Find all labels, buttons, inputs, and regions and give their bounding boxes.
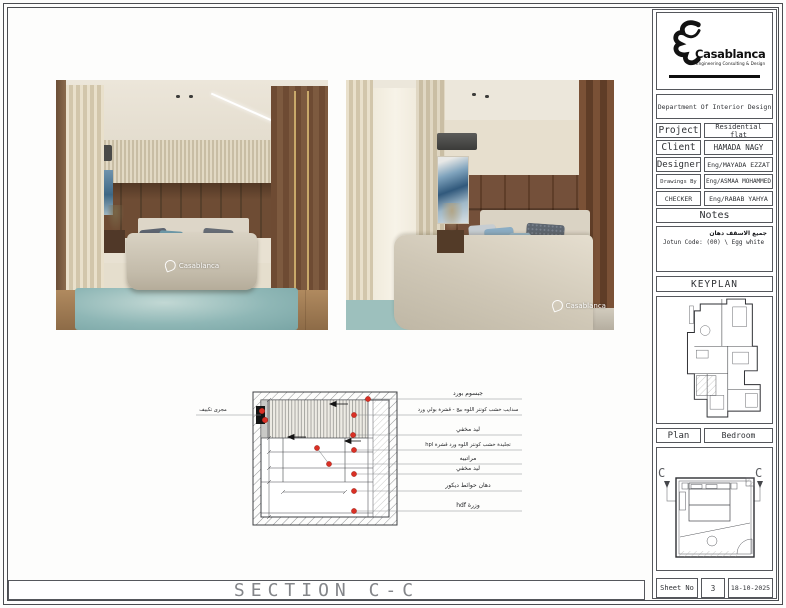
- wardrobe: [271, 86, 328, 319]
- plan-value: Bedroom: [704, 428, 773, 443]
- section-label-wood-slats: سدايب خشب كونتر اللوه بيج - قشرة بولي ور…: [412, 406, 524, 414]
- logo-underline: [669, 75, 760, 78]
- notes-box: جميع الاسقف دهان Jotun Code: (00) \ Egg …: [656, 226, 773, 272]
- row-label-designer: Designer: [656, 157, 701, 172]
- slat-panel: [102, 140, 271, 183]
- bedroom-render-close: Casablanca: [346, 80, 614, 330]
- bedroom-plan-drawing: [654, 446, 776, 572]
- plant: [106, 205, 125, 233]
- row-label-checker: CHECKER: [656, 191, 701, 206]
- watermark-logo-icon: [550, 298, 564, 312]
- sheet-title-bar: SECTION C-C: [8, 580, 645, 600]
- sheet-no-label: Sheet No: [656, 578, 698, 598]
- rug: [75, 288, 298, 331]
- curtain: [66, 85, 104, 320]
- watermark: Casablanca: [165, 260, 219, 271]
- wardrobe-frame: [307, 91, 309, 312]
- keyplan-drawing: [657, 297, 772, 423]
- row-value-client: HAMADA NAGY: [704, 140, 773, 155]
- notes-header: Notes: [656, 208, 773, 223]
- brand-tagline: Engineering Consulting & Design: [696, 61, 765, 66]
- drawing-sheet: Casablanca Casablanca: [0, 0, 786, 608]
- spotlight: [176, 95, 180, 98]
- sheet-number: 3: [701, 578, 725, 598]
- row-value-designer: Eng/MAYADA EZZAT: [704, 157, 773, 172]
- section-label-hidden-led-1: ليد مخفي: [412, 426, 524, 434]
- section-label-gypsum: جبسوم بورد: [412, 390, 524, 398]
- sheet-date: 18-10-2025: [728, 578, 773, 598]
- section-label-hpl-cladding: تجليدة خشب كونتر اللوه ورد قشرة hpl: [412, 441, 524, 449]
- note-arabic: جميع الاسقف دهان: [709, 230, 767, 237]
- row-label-project: Project: [656, 123, 701, 138]
- section-title-text: SECTION C-C: [234, 580, 419, 601]
- section-label-hdf-skirting: وزرة hdf: [412, 502, 524, 510]
- row-value-checker: Eng/RABAB YAHYA: [704, 191, 773, 206]
- curtain: [346, 80, 373, 323]
- section-marker-c-left: C: [658, 466, 665, 480]
- department-box: Department Of Interior Design: [656, 94, 773, 119]
- bed: [394, 235, 592, 330]
- section-label-wall-paint: دهان حوائط ديكور: [412, 482, 524, 490]
- nightstand: [104, 230, 126, 253]
- row-value-project: Residential flat: [704, 123, 773, 138]
- row-label-client: Client: [656, 140, 701, 155]
- wardrobe-frame: [294, 91, 296, 312]
- section-label-upholstery: مراتبيه: [412, 455, 524, 463]
- section-marker-c-right: C: [755, 466, 762, 480]
- ac-unit: [437, 133, 477, 151]
- spotlight: [472, 93, 476, 96]
- row-value-drawings-by: Eng/ASMAA MOHAMMED: [704, 174, 773, 189]
- section-label-hidden-led-2: ليد مخفي: [412, 465, 524, 473]
- watermark: Casablanca: [552, 300, 606, 311]
- bedroom-render-wide: Casablanca: [56, 80, 328, 330]
- plan-label: Plan: [656, 428, 701, 443]
- watermark-logo-icon: [163, 258, 177, 272]
- keyplan-header: KEYPLAN: [656, 276, 773, 292]
- watermark-text: Casablanca: [566, 302, 606, 310]
- logo-box: Casablanca Engineering Consulting & Desi…: [656, 12, 773, 90]
- section-ceiling-slats: [261, 400, 368, 438]
- watermark-text: Casablanca: [179, 262, 219, 270]
- plant: [440, 203, 464, 233]
- keyplan-box: [656, 296, 773, 424]
- row-label-drawings-by: Drawings By: [656, 174, 701, 189]
- nightstand: [437, 230, 464, 253]
- note-jotun: Jotun Code: (00) \ Egg white: [663, 239, 764, 246]
- section-label-ac-duct: مجرى تكييف: [195, 406, 231, 414]
- brand-name: Casablanca: [695, 47, 766, 61]
